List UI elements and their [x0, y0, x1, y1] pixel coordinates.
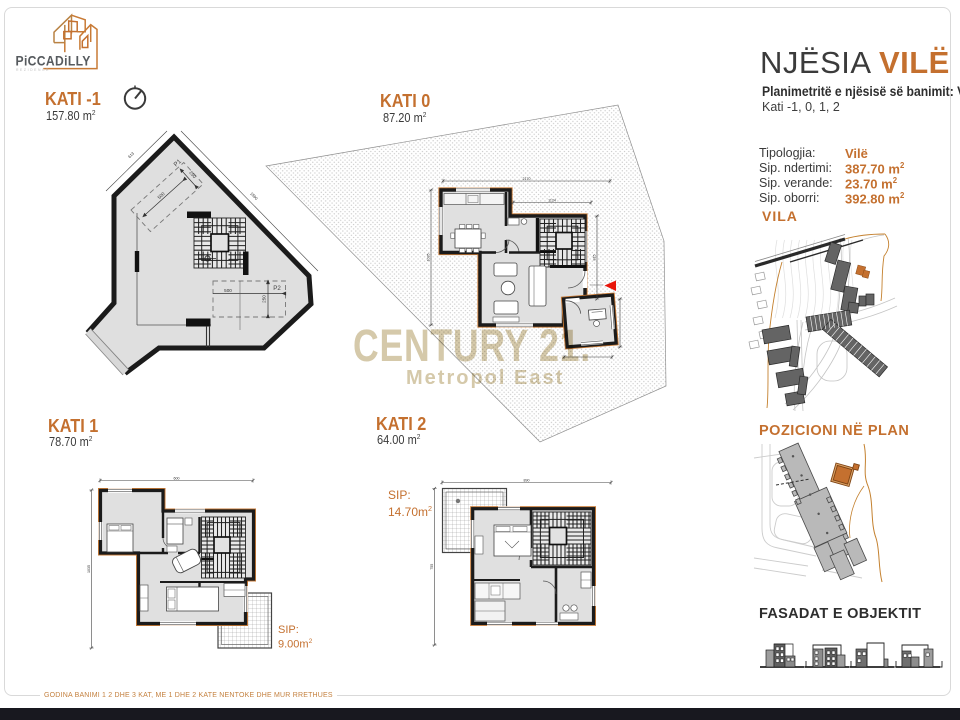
svg-text:1035: 1035 — [427, 254, 431, 262]
svg-text:815: 815 — [593, 255, 597, 261]
svg-text:REZIDENCE: REZIDENCE — [16, 68, 50, 72]
svg-text:890: 890 — [524, 478, 530, 482]
svg-text:755: 755 — [430, 564, 434, 570]
svg-text:613: 613 — [127, 150, 136, 159]
svg-text:1124: 1124 — [548, 198, 556, 202]
svg-text:2170: 2170 — [523, 177, 531, 181]
svg-text:500: 500 — [224, 288, 232, 293]
svg-text:PiCCADiLLY: PiCCADiLLY — [16, 53, 91, 69]
svg-text:1590: 1590 — [249, 191, 259, 201]
svg-text:1035: 1035 — [87, 565, 91, 573]
svg-text:600: 600 — [174, 476, 180, 480]
